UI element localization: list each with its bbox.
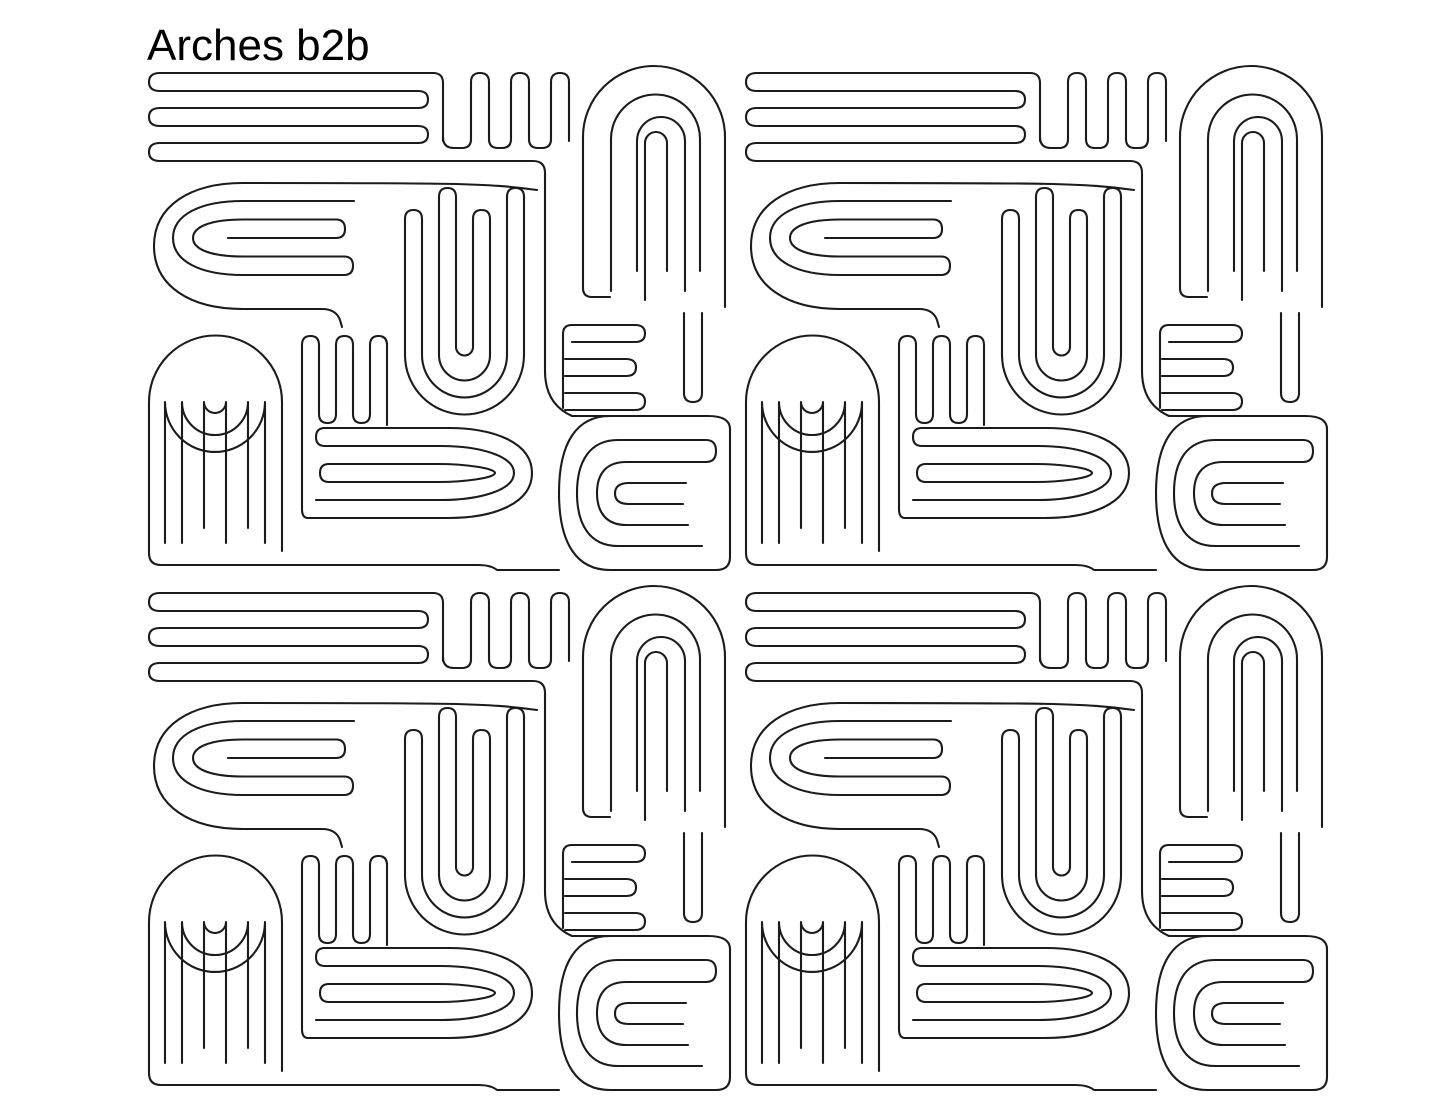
pattern-tile-instance-bottom-left [149,586,730,1090]
pattern-tile-instance-top-left [149,66,730,570]
pattern-tile-instance-top-right [746,66,1327,570]
pattern-tile-instance-bottom-right [746,586,1327,1090]
arches-pattern-canvas [0,0,1445,1117]
pattern-sheet: Arches b2b [0,0,1445,1117]
